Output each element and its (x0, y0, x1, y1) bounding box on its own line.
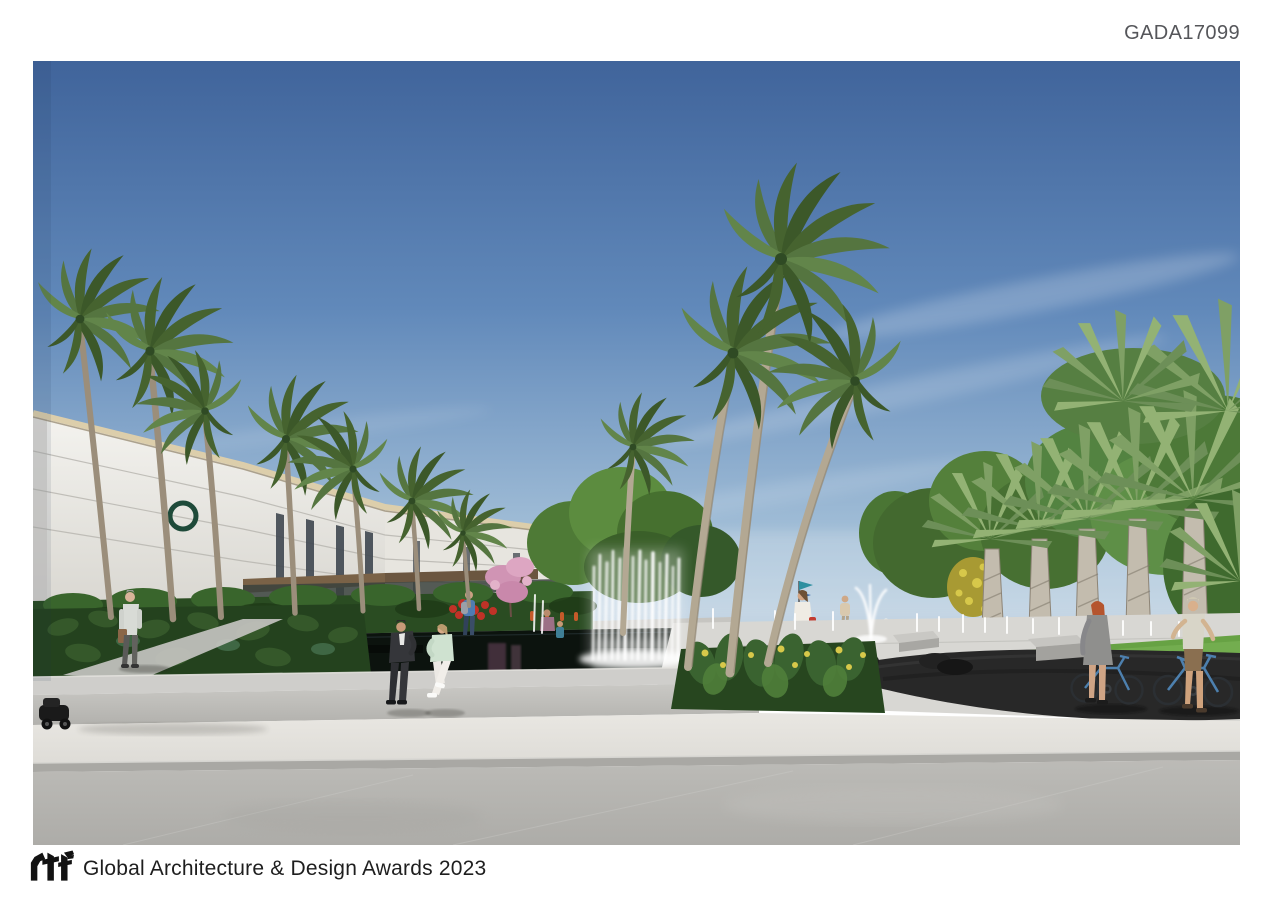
vignette (33, 61, 51, 681)
footer-branding: Global Architecture & Design Awards 2023 (28, 846, 486, 892)
project-rendering (33, 61, 1240, 845)
award-entry-page: GADA17099 (0, 0, 1273, 900)
rtf-logo (28, 846, 74, 893)
award-title: Global Architecture & Design Awards 2023 (83, 857, 486, 881)
entry-code: GADA17099 (1124, 22, 1240, 45)
left-planting-bed (33, 604, 371, 681)
rendering-image (33, 61, 1240, 845)
